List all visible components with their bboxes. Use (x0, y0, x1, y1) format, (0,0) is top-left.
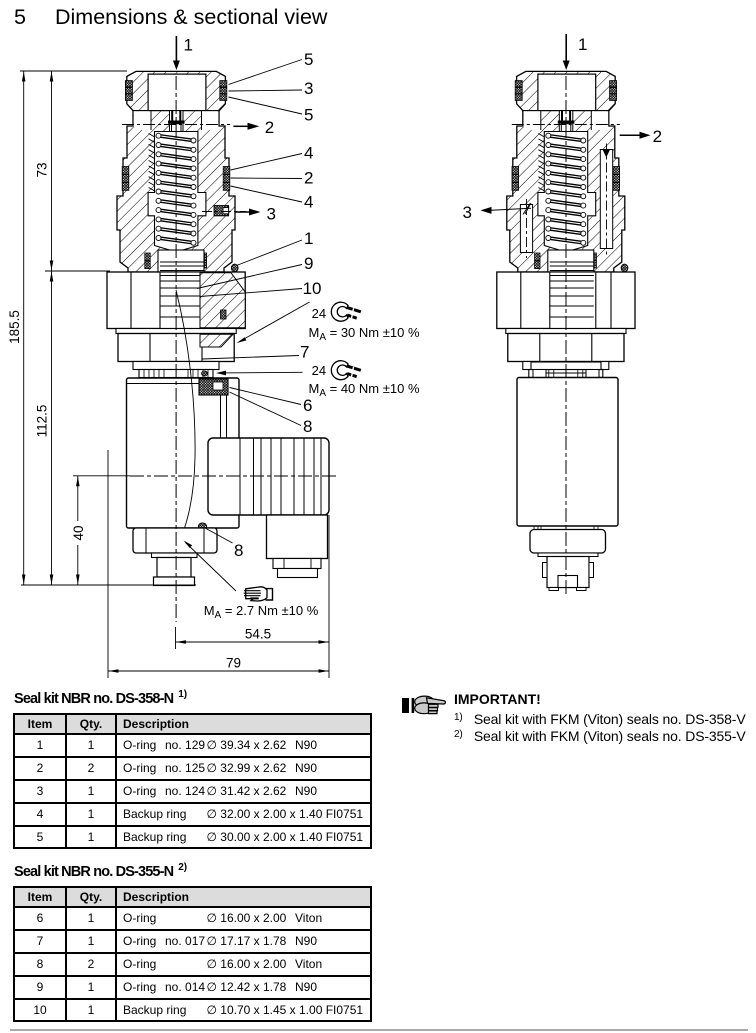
svg-text:112.5: 112.5 (35, 405, 50, 438)
svg-text:3: 3 (267, 204, 276, 223)
svg-text:1: 1 (184, 36, 193, 55)
svg-text:3: 3 (304, 79, 313, 98)
svg-text:24: 24 (312, 306, 326, 321)
svg-text:2: 2 (304, 169, 313, 188)
svg-text:5: 5 (304, 106, 313, 125)
svg-text:5: 5 (304, 50, 313, 69)
svg-text:MA = 2.7 Nm ±10 %: MA = 2.7 Nm ±10 % (204, 603, 319, 621)
svg-text:MA = 40 Nm ±10 %: MA = 40 Nm ±10 % (309, 381, 420, 399)
svg-text:79: 79 (226, 656, 241, 671)
svg-text:1: 1 (578, 35, 587, 54)
svg-text:MA = 30 Nm ±10 %: MA = 30 Nm ±10 % (309, 325, 420, 343)
svg-text:73: 73 (35, 162, 50, 177)
svg-text:9: 9 (304, 254, 313, 273)
svg-text:185.5: 185.5 (7, 310, 22, 344)
svg-text:7: 7 (300, 343, 309, 362)
svg-text:2: 2 (653, 127, 662, 146)
svg-text:2: 2 (265, 118, 274, 137)
svg-text:24: 24 (312, 363, 326, 378)
svg-text:10: 10 (303, 279, 322, 298)
svg-text:4: 4 (304, 143, 313, 162)
svg-text:8: 8 (234, 541, 243, 560)
svg-text:6: 6 (303, 396, 312, 415)
svg-text:40: 40 (71, 525, 86, 540)
svg-text:8: 8 (303, 417, 312, 436)
svg-text:1: 1 (304, 229, 313, 248)
svg-text:4: 4 (304, 193, 313, 212)
svg-text:3: 3 (463, 203, 472, 222)
svg-text:54.5: 54.5 (245, 627, 271, 642)
